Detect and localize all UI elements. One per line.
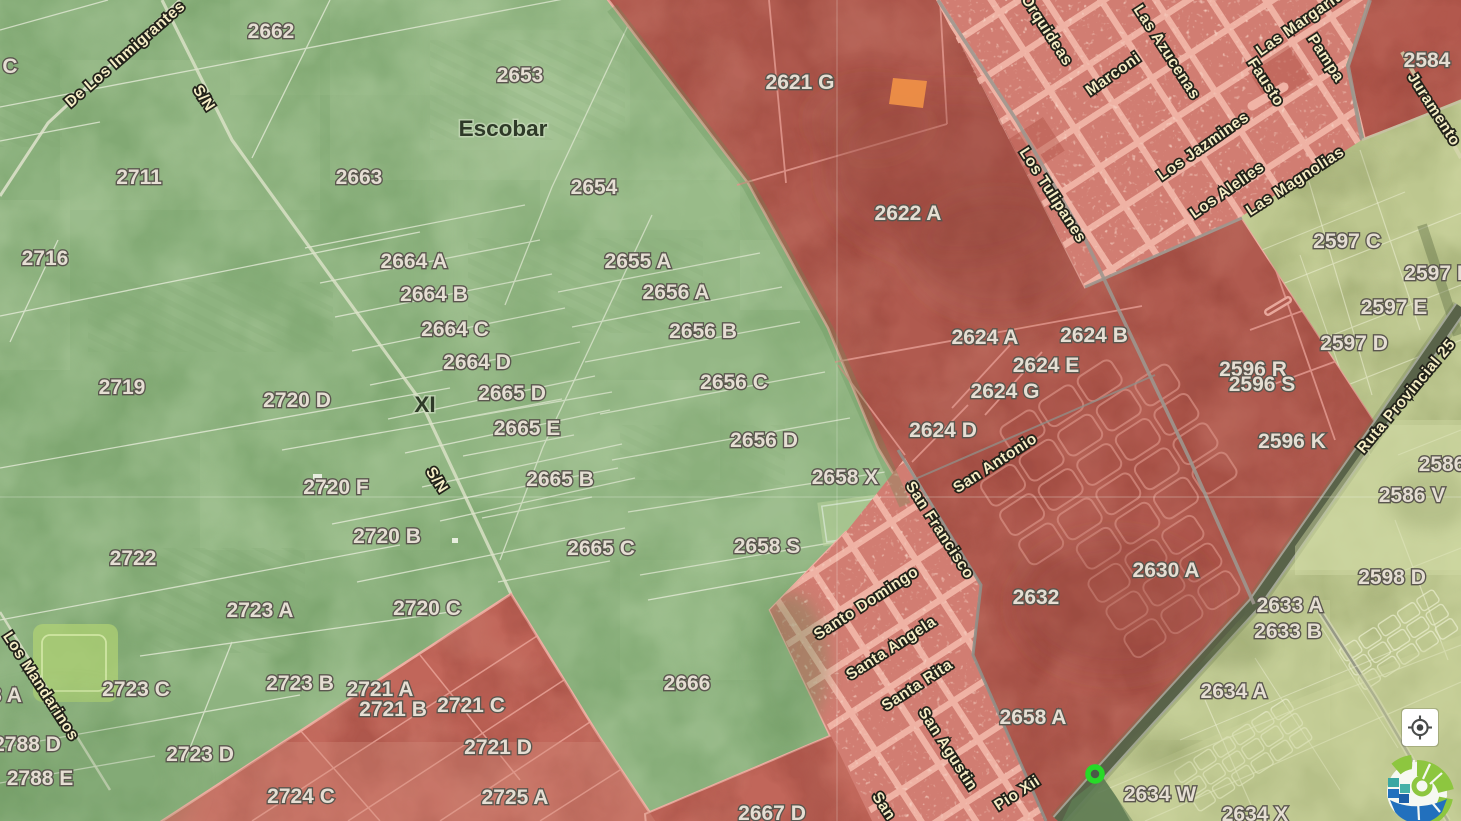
svg-text:2662: 2662 (248, 20, 295, 43)
svg-text:2634 W: 2634 W (1124, 783, 1197, 806)
svg-text:2667 D: 2667 D (738, 802, 806, 821)
svg-text:2630 A: 2630 A (1133, 559, 1200, 582)
svg-text:2723 A: 2723 A (227, 599, 294, 622)
svg-text:2723 D: 2723 D (166, 743, 234, 766)
svg-text:2664 A: 2664 A (381, 250, 448, 273)
svg-text:2788 D: 2788 D (0, 733, 61, 756)
svg-text:2724 C: 2724 C (267, 785, 335, 808)
svg-text:2658 X: 2658 X (812, 466, 879, 489)
svg-text:2596 K: 2596 K (1258, 430, 1326, 453)
svg-text:2584: 2584 (1404, 49, 1451, 72)
svg-text:2716: 2716 (22, 247, 69, 270)
svg-text:2666: 2666 (664, 672, 711, 695)
svg-text:2663: 2663 (336, 166, 383, 189)
svg-text:2720 D: 2720 D (263, 389, 331, 412)
svg-text:2664 D: 2664 D (443, 351, 511, 374)
svg-text:2658 S: 2658 S (734, 535, 801, 558)
svg-text:2788 E: 2788 E (7, 767, 74, 790)
svg-text:2654: 2654 (571, 176, 618, 199)
svg-text:2622 A: 2622 A (875, 202, 942, 225)
svg-text:2624 E: 2624 E (1013, 354, 1080, 377)
svg-text:2719: 2719 (99, 376, 146, 399)
svg-text:2664 B: 2664 B (400, 283, 468, 306)
svg-text:2624 G: 2624 G (971, 380, 1040, 403)
svg-text:2664 C: 2664 C (421, 318, 489, 341)
svg-text:2624 D: 2624 D (909, 419, 977, 442)
svg-text:2624 B: 2624 B (1060, 324, 1128, 347)
svg-text:2634 X: 2634 X (1222, 803, 1289, 821)
svg-text:2632: 2632 (1013, 586, 1060, 609)
svg-text:2658 A: 2658 A (1000, 706, 1067, 729)
svg-text:2597 C: 2597 C (1313, 230, 1381, 253)
svg-text:2634 A: 2634 A (1201, 680, 1268, 703)
svg-text:2721 B: 2721 B (359, 698, 427, 721)
svg-text:2655 A: 2655 A (605, 250, 672, 273)
svg-text:2653: 2653 (497, 64, 544, 87)
svg-text:2656 A: 2656 A (643, 281, 710, 304)
svg-text:2723 B: 2723 B (266, 672, 334, 695)
svg-text:8 A: 8 A (0, 684, 22, 707)
svg-text:2721 D: 2721 D (464, 736, 532, 759)
svg-text:2598 D: 2598 D (1358, 566, 1426, 589)
svg-text:2621 G: 2621 G (766, 71, 835, 94)
svg-text:2711: 2711 (116, 166, 162, 189)
svg-text:Escobar: Escobar (459, 116, 548, 141)
svg-text:2624 A: 2624 A (952, 326, 1019, 349)
svg-text:2722: 2722 (110, 547, 157, 570)
svg-text:2725 A: 2725 A (482, 786, 549, 809)
svg-text:2723 C: 2723 C (102, 678, 170, 701)
svg-text:2633 A: 2633 A (1257, 594, 1324, 617)
svg-text:2665 C: 2665 C (567, 537, 635, 560)
svg-text:2721 C: 2721 C (437, 694, 505, 717)
svg-text:2597 F: 2597 F (1404, 262, 1461, 285)
svg-text:2656 D: 2656 D (730, 429, 798, 452)
svg-text:2656 B: 2656 B (669, 320, 737, 343)
svg-text:2665 D: 2665 D (478, 382, 546, 405)
svg-text:2597 D: 2597 D (1320, 332, 1388, 355)
svg-text:2586 V: 2586 V (1379, 484, 1446, 507)
svg-text:C: C (2, 55, 17, 78)
svg-text:2665 E: 2665 E (494, 417, 561, 440)
svg-text:2596 S: 2596 S (1229, 373, 1296, 396)
svg-text:XI: XI (414, 392, 435, 417)
svg-text:2597 E: 2597 E (1361, 296, 1428, 319)
svg-text:2633 B: 2633 B (1254, 620, 1322, 643)
svg-text:2665 B: 2665 B (526, 468, 594, 491)
svg-text:2656 C: 2656 C (700, 371, 768, 394)
svg-text:2720 B: 2720 B (353, 525, 421, 548)
svg-text:2586: 2586 (1419, 453, 1461, 476)
svg-text:2720 C: 2720 C (393, 597, 461, 620)
svg-text:2720 F: 2720 F (303, 476, 369, 499)
